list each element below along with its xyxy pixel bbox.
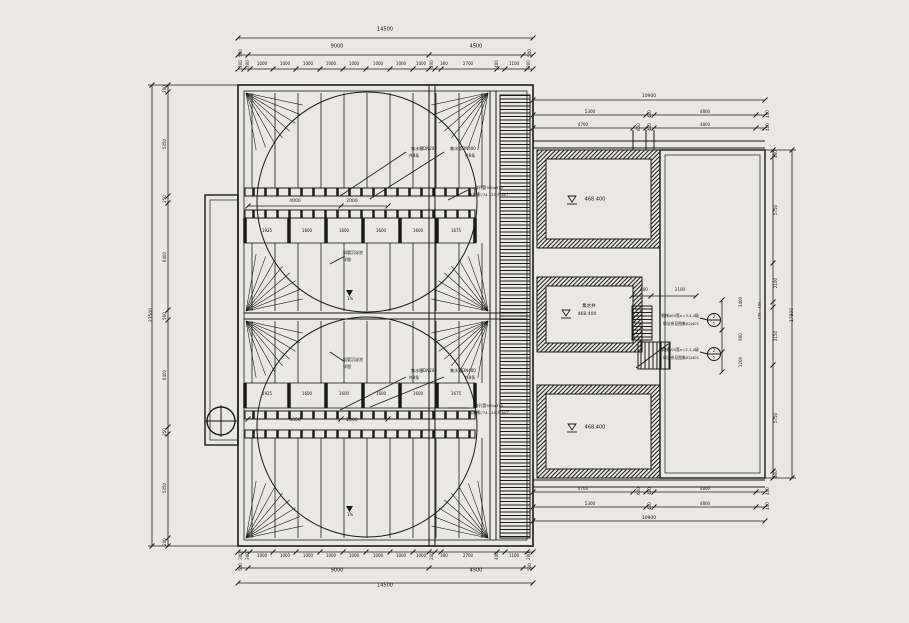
dim-label: 1000 [416,62,426,66]
annotation-label: 详图 [343,365,351,369]
annotation-label: 斜管沉淀池 [343,358,363,362]
dim-label: 1100 [509,554,519,558]
dim-label: 400 [766,110,770,118]
annotation-label: 1600 [376,229,386,233]
dim-label: 5350 [163,483,167,493]
annotation-label: 钢梯400宽n=2.1,4级 [661,348,699,352]
dim-label: 1200 [739,357,743,367]
dim-label: 300 [440,62,448,66]
dim-label: 2700 [463,554,473,558]
dim-label: 1100 [509,62,519,66]
dim-label: 400 [648,502,652,510]
dim-label: 500 [163,312,167,320]
annotation-label: 1600 [302,392,312,396]
dim-label: 200 [163,538,167,546]
dim-label: 400 [648,110,652,118]
dim-label: 300 [239,552,243,560]
annotation-label: 做法参见图集02J401 [663,356,699,360]
annotation-label: 共8条 [409,376,420,380]
left-pipe-gallery [205,195,238,445]
dim-label: 9000 [331,45,344,50]
dim-label: 17800 [791,308,796,322]
annotation-label: 1600 [339,229,349,233]
dim-label: 1000 [349,554,359,558]
annotation-label: 1600 [339,392,349,396]
dim-label: 1000 [303,62,313,66]
dim-label: 500 [528,563,532,571]
dim-label: 4800 [700,123,710,127]
annotation-label: 1675 [451,392,461,396]
dim-label: 1000 [280,62,290,66]
dim-label: 400 [766,487,770,495]
annotation-label: 468.400 [585,426,606,431]
annotation-label: 1600 [413,392,423,396]
dim-label: 1000 [396,62,406,66]
dim-label: 10900 [642,517,656,522]
dim-label: 4800 [700,502,710,506]
annotation-label: 5 [713,356,715,360]
annotation-label: 共8条 [465,154,476,158]
dim-label: 250 [163,428,167,436]
annotation-label: 1600 [413,229,423,233]
dim-label: 1000 [280,554,290,558]
dim-label: 400 [495,60,499,68]
annotation-label: 做法参见图集02J401 [663,322,699,326]
dim-label: 100 [758,302,762,309]
dim-label: 4800 [700,110,710,114]
annotation-label: 共8条 [465,376,476,380]
annotation-label: 1600 [376,392,386,396]
dim-label: 5750 [774,413,778,423]
dim-label: 23500 [150,308,155,322]
dim-label: 400 [648,487,652,495]
dim-label: 200 [163,85,167,93]
annotation-label: 5 [713,322,715,326]
dim-label: 900 [739,333,743,341]
main-tank-block [238,85,533,546]
annotation-label: 4000 [289,419,300,424]
dim-label: 2700 [463,62,473,66]
dim-label: 2100 [774,278,778,288]
annotation-label: 集水槽▽74.120,共36个 [468,193,509,197]
dim-label: 1000 [303,554,313,558]
drawing-geometry [0,0,909,623]
dim-label: 1000 [257,554,267,558]
dim-label: 4800 [700,487,710,491]
dim-label: 1000 [326,554,336,558]
dim-label: 1000 [349,62,359,66]
annotation-label: 1% [347,297,353,301]
annotation-label: 2 [713,315,716,319]
annotation-label: 2000 [346,419,357,424]
dim-label: 4500 [470,569,483,574]
annotation-label: 集水槽▽74.120,共36个 [468,411,509,415]
dim-label: 9000 [331,569,344,574]
hatched-channel-strip [500,95,530,538]
dim-label: 200 [527,60,531,68]
dim-label: 400 [766,123,770,131]
annotation-label: 1675 [451,229,461,233]
dim-label: 500 [239,563,243,571]
annotation-label: 钢梯400宽n=3.4,4级 [661,314,699,318]
dim-label: 600 [637,123,641,131]
stair-flight-upper [632,306,652,340]
annotation-label: 1% [347,513,353,517]
dim-label: 1000 [257,62,267,66]
dim-label: 500 [528,49,532,57]
engineering-drawing: 1450090004500500500300300100010001000100… [0,0,909,623]
annotation-label: 共8条 [409,154,420,158]
right-room-block [533,130,765,487]
dim-label: 6400 [163,370,167,380]
annotation-label: 穿孔管950x370 [475,404,503,408]
annotation-label: 1925 [262,229,272,233]
annotation-label: 2000 [346,200,357,205]
dim-label: 3150 [774,331,778,341]
dim-label: 400 [495,552,499,560]
annotation-label: 900 [640,288,648,292]
dimension-lines [148,36,796,586]
dim-label: 400 [774,470,778,478]
dim-label: 1000 [373,62,383,66]
dim-label: 6400 [163,252,167,262]
dim-label: 300 [239,60,243,68]
annotation-label: 1600 [302,229,312,233]
dim-label: 150 [758,313,762,320]
dim-label: 250 [163,195,167,203]
dim-label: 1000 [416,554,426,558]
dim-label: 300 [246,60,250,68]
annotation-label: 集水槽DN200 [411,147,437,151]
dim-label: 300 [440,554,448,558]
dim-label: 14500 [377,28,393,33]
annotation-label: 468.400 [585,198,606,203]
dim-label: 400 [648,123,652,131]
dim-label: 5750 [774,205,778,215]
dim-label: 3400 [739,297,743,307]
dim-label: 1000 [396,554,406,558]
annotation-label: 1925 [262,392,272,396]
dim-label: 4500 [470,45,483,50]
annotation-label: 集水井 [582,305,596,310]
dim-label: 200 [430,60,434,68]
annotation-label: 穿孔管950x370 [475,186,503,190]
dim-label: 200 [430,552,434,560]
annotation-label: 集水槽DN200 [411,369,437,373]
dim-label: 14500 [377,584,393,589]
annotation-label: 468.400 [578,313,597,318]
slope-symbols [346,290,353,512]
dim-label: 500 [239,49,243,57]
dim-label: 1000 [326,62,336,66]
annotation-label: 详图 [343,258,351,262]
dim-label: 200 [527,552,531,560]
dim-label: 1000 [373,554,383,558]
annotation-label: 2100 [675,288,685,292]
annotation-label: 集水管DN400 [450,147,476,151]
annotation-label: 集水管DN400 [450,369,476,373]
annotation-label: 4000 [289,200,300,205]
annotation-label: 斜管沉淀池 [343,251,363,255]
dim-label: 4700 [578,487,588,491]
dim-label: 400 [766,502,770,510]
dim-label: 5300 [585,110,595,114]
dim-label: 10900 [642,95,656,100]
annotation-label: 2 [713,349,716,353]
dim-label: 600 [637,487,641,495]
dim-label: 300 [246,552,250,560]
dim-label: 400 [774,150,778,158]
dim-label: 5350 [163,139,167,149]
dim-label: 5300 [585,502,595,506]
dim-label: 4700 [578,123,588,127]
